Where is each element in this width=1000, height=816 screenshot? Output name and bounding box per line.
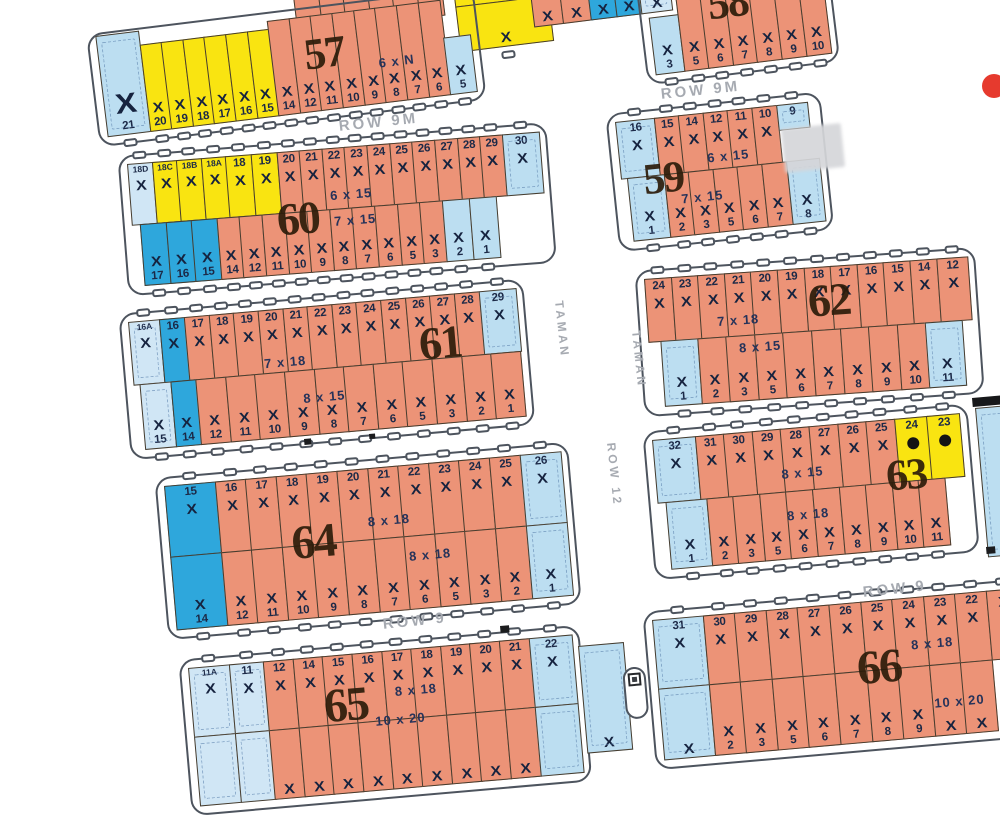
x-mark: X (723, 723, 735, 738)
plot-cell-12: 12X (936, 256, 972, 322)
street-access-tab (739, 67, 754, 77)
plot-number: 17 (191, 317, 204, 330)
street-access-tab (269, 442, 284, 451)
street-access-tab (931, 582, 946, 591)
red-location-marker (982, 74, 1000, 98)
plot-number: 22 (965, 594, 978, 607)
street-access-tab (181, 147, 196, 156)
plot-cell-23: 23 (926, 413, 965, 480)
street-access-tab (210, 447, 225, 456)
plot-number: 32 (668, 440, 681, 453)
x-mark: X (265, 590, 277, 605)
x-mark: X (661, 42, 673, 57)
street-access-tab (240, 444, 255, 453)
street-access-tab (201, 654, 216, 663)
x-mark: X (820, 443, 832, 458)
plot-number: 6 (422, 593, 429, 606)
street-access-tab (164, 306, 179, 315)
plot-number: 5 (692, 55, 700, 68)
plot-number: 25 (395, 144, 408, 157)
x-mark: X (465, 155, 477, 170)
plot-number: 7 (853, 728, 860, 741)
plot-number: 31 (672, 619, 685, 632)
plot-number: 11 (266, 606, 279, 619)
x-mark: X (709, 371, 721, 386)
plot-number: 12 (209, 428, 222, 441)
x-mark: X (209, 412, 221, 427)
plot-number: 12 (946, 259, 959, 272)
plot-number: 3 (483, 588, 490, 601)
plot-number: 30 (515, 135, 528, 148)
x-mark: X (313, 778, 325, 793)
plot-number: 2 (678, 221, 685, 234)
x-mark: X (442, 156, 454, 171)
plot-number: 7 (741, 49, 749, 62)
plot-number: 23 (350, 148, 363, 161)
street-access-tab (405, 452, 420, 461)
x-mark: X (761, 30, 773, 45)
plot-number: 9 (371, 89, 379, 102)
x-mark: X (674, 205, 686, 220)
x-mark: X (176, 251, 188, 266)
x-mark: X (786, 27, 798, 42)
plot-number: 28 (461, 294, 474, 307)
street-access-tab (774, 229, 789, 238)
block-60: 18DX18CX18BX18AX18X19X20X21X22X23X24X25X… (127, 132, 548, 287)
x-mark: X (291, 325, 303, 340)
x-mark: X (185, 174, 197, 189)
x-mark: X (680, 294, 692, 309)
plot-number: 9 (880, 535, 887, 548)
plot-number: 28 (789, 429, 802, 442)
street-access-tab (758, 417, 773, 426)
reserved-dot-mark (939, 434, 952, 447)
plot-number: 14 (282, 99, 296, 112)
street-access-tab (931, 549, 946, 558)
x-mark: X (257, 495, 269, 510)
plot-number: 8 (342, 255, 349, 268)
street-access-tab (387, 431, 402, 440)
street-access-tab (458, 97, 473, 107)
street-access-tab (157, 149, 172, 158)
x-mark: X (684, 536, 696, 551)
block-edge-parcel (975, 404, 1000, 557)
plot-number: 18A (206, 159, 222, 169)
street-label: TAMAN (629, 330, 649, 389)
plot-number: 3 (758, 736, 765, 749)
street-access-tab (454, 264, 469, 273)
street-access-tab (312, 293, 327, 302)
street-access-tab (905, 552, 920, 561)
plot-number: 1 (549, 582, 556, 595)
street-access-tab (909, 392, 924, 401)
x-mark: X (810, 623, 822, 638)
x-mark: X (201, 249, 213, 264)
x-mark: X (877, 519, 889, 534)
street-access-tab (670, 605, 685, 614)
x-mark: X (388, 70, 400, 85)
street-access-tab (903, 405, 918, 414)
plot-number: 23 (933, 596, 946, 609)
street-access-tab (202, 284, 217, 293)
x-mark: X (570, 5, 582, 20)
street-access-tab (253, 465, 268, 474)
street-access-tab (362, 271, 377, 280)
x-mark: X (227, 498, 239, 513)
x-mark: X (893, 279, 905, 294)
block-64: 15X16X17X18X19X20X21X22X23X24X25X26XX14X… (164, 451, 572, 630)
street-access-tab (182, 471, 197, 480)
street-access-tab (767, 402, 782, 411)
x-mark: X (948, 275, 960, 290)
x-mark: X (418, 577, 430, 592)
street-access-tab (799, 561, 814, 570)
street-access-tab (249, 280, 264, 289)
street-access-tab (683, 101, 698, 110)
x-mark: X (238, 89, 250, 104)
street-access-tab (783, 256, 798, 265)
street-access-tab (813, 58, 828, 68)
plot-number: 5 (769, 384, 776, 396)
x-mark: X (547, 654, 559, 669)
plot-number: 20 (479, 643, 492, 656)
plot-number: 1 (507, 402, 514, 415)
street-access-tab (542, 624, 557, 633)
plot-number: 24 (652, 280, 665, 293)
x-mark: X (766, 368, 778, 383)
x-mark: X (356, 399, 368, 414)
plot-cell-32: 32X (652, 436, 701, 504)
x-mark: X (787, 286, 799, 301)
x-mark: X (786, 717, 798, 732)
x-mark: X (778, 626, 790, 641)
plot-number: 27 (436, 296, 449, 309)
plot-number: 3 (748, 547, 755, 560)
x-mark: X (352, 164, 364, 179)
street-access-tab (477, 629, 492, 638)
plot-number: 6 (389, 413, 396, 426)
plot-number: 6 (435, 81, 443, 94)
street-access-tab (236, 628, 251, 637)
x-mark: X (338, 238, 350, 253)
plot-number: 17 (390, 651, 403, 664)
plot-number: 29 (744, 613, 757, 626)
plot-number: 8 (855, 378, 862, 390)
x-mark: X (205, 681, 217, 696)
x-mark: X (260, 171, 272, 186)
x-mark: X (718, 533, 730, 548)
block-number: 59 (641, 155, 685, 201)
plot-number: 19 (258, 155, 271, 168)
block-63: 32X31X30X29X28X27X26X25X2423X1X2X3X5X6X7… (652, 413, 970, 570)
x-mark: X (479, 227, 491, 242)
plot-cell: X (658, 684, 716, 760)
plot-number: 25 (387, 300, 400, 313)
x-mark: X (365, 318, 377, 333)
x-mark: X (504, 386, 516, 401)
plot-number: 14 (226, 263, 239, 276)
x-mark: X (455, 62, 467, 77)
x-mark: X (919, 277, 931, 292)
plot-number: 28 (776, 610, 789, 623)
plot-number: 15 (660, 118, 673, 131)
plot-number: 8 (765, 46, 773, 59)
street-access-tab (328, 620, 343, 629)
plot-number: 18 (420, 649, 433, 662)
street-access-tab (803, 226, 818, 235)
street-access-tab (450, 609, 465, 618)
x-mark: X (318, 490, 330, 505)
x-mark: X (909, 358, 921, 373)
plot-number: 5 (419, 410, 426, 423)
x-mark: X (393, 667, 405, 682)
street-access-tab (963, 580, 978, 589)
street-access-tab (852, 556, 867, 565)
plot-number: 16 (176, 267, 189, 280)
plot-number: 16 (239, 104, 253, 117)
plot-number: 3 (432, 247, 439, 260)
street-access-tab (272, 279, 287, 288)
street-access-tab (994, 577, 1000, 586)
plot-number: 22 (544, 638, 557, 651)
street-access-tab (863, 251, 878, 260)
plot-number: 29 (485, 137, 498, 150)
street-access-tab (787, 415, 802, 424)
street-access-tab (815, 412, 830, 421)
x-mark: X (113, 89, 138, 119)
block-61: 16AX16X17X18X19X20X21X22X23X24X25X26X27X… (128, 288, 526, 450)
plot-number: 21 (377, 468, 390, 481)
street-access-tab (805, 593, 820, 602)
plot-cell-22: 22X (528, 634, 578, 708)
plot-number: 5 (790, 733, 797, 746)
street-access-tab (646, 243, 661, 252)
block-58: X3X5X6X7X8X9X1058 (645, 0, 831, 75)
x-mark: X (225, 247, 237, 262)
plot-cell-26: 26X (519, 451, 567, 526)
plot-number: 5 (774, 545, 781, 558)
x-mark: X (260, 86, 272, 101)
x-mark: X (873, 618, 885, 633)
plot-cell-29: 29X (478, 288, 521, 355)
street-label: ROW 9 (382, 609, 448, 633)
plot-number: 11 (734, 110, 747, 123)
street-access-tab (676, 239, 691, 248)
street-access-tab (359, 640, 374, 649)
street-access-tab (436, 449, 451, 458)
x-mark: X (461, 765, 473, 780)
block-65: 11AX11X12X14X15X16X17X18X19X20X21X22XXXX… (188, 635, 583, 807)
plot-number: 20 (265, 311, 278, 324)
x-mark: X (791, 445, 803, 460)
plot-number: 11 (239, 425, 252, 438)
street-access-tab (825, 559, 840, 568)
x-mark: X (479, 571, 491, 586)
street-access-tab (344, 457, 359, 466)
street-access-tab (730, 420, 745, 429)
plot-number: 5 (452, 590, 459, 603)
street-access-tab (881, 394, 896, 403)
street-access-tab (459, 280, 474, 289)
plot-number: 2 (456, 245, 463, 258)
plot-number: 15 (261, 102, 275, 115)
street-access-tab (730, 260, 745, 269)
plot-number: 8 (330, 418, 337, 431)
plot-number: 10 (909, 373, 922, 386)
x-mark: X (850, 522, 862, 537)
x-mark: X (293, 242, 305, 257)
plot-number: 12 (236, 609, 249, 622)
street-access-tab (742, 599, 757, 608)
x-mark: X (490, 763, 502, 778)
plot-number: 6 (798, 382, 805, 394)
x-mark: X (275, 678, 287, 693)
x-mark: X (448, 574, 460, 589)
street-access-tab (677, 409, 692, 418)
x-mark: X (849, 712, 861, 727)
plot-number: 20 (758, 272, 771, 285)
x-mark: X (761, 124, 773, 139)
x-mark: X (242, 329, 254, 344)
plot-number: 7 (360, 415, 367, 428)
street-access-tab (783, 91, 798, 100)
plot-number: 24 (902, 599, 915, 612)
plot-number: 9 (301, 420, 308, 433)
x-mark: X (493, 307, 505, 322)
block-number: 65 (322, 681, 370, 730)
block-number: 61 (417, 319, 463, 366)
x-mark: X (536, 471, 548, 486)
plot-number: 14 (917, 261, 930, 274)
x-mark: X (707, 292, 719, 307)
x-mark: X (967, 610, 979, 625)
x-mark: X (474, 389, 486, 404)
street-access-tab (513, 121, 528, 130)
block-number: 63 (884, 452, 927, 497)
x-mark: X (976, 715, 988, 730)
street-access-tab (824, 398, 839, 407)
plot-number: 26 (846, 424, 859, 437)
street-access-tab (385, 286, 400, 295)
street-access-tab (418, 635, 433, 644)
x-mark: X (316, 323, 328, 338)
x-mark: X (663, 134, 675, 149)
plot-number: 10 (904, 533, 917, 546)
plot-number: 1 (688, 552, 695, 565)
x-mark: X (674, 635, 686, 650)
plot-number: 31 (703, 436, 716, 449)
block-57: X21X20X19X18X17X16X15X14X12X11X10X9X8X7X… (96, 0, 477, 137)
x-mark: X (316, 240, 328, 255)
plot-number: 1 (483, 243, 490, 256)
x-mark: X (687, 131, 699, 146)
street-access-tab (475, 423, 490, 432)
street-access-tab (262, 121, 277, 131)
plot-number: 9 (884, 376, 891, 388)
x-mark: X (153, 417, 165, 432)
plot-number: 14 (685, 115, 698, 128)
x-mark: X (654, 296, 666, 311)
plot-number: 25 (874, 421, 887, 434)
plot-number: 19 (316, 474, 329, 487)
plot-number: 15 (202, 265, 215, 278)
plot-number: 18 (233, 157, 246, 170)
plot-number: 23 (438, 463, 451, 476)
street-access-tab (238, 299, 253, 308)
x-mark: X (383, 235, 395, 250)
x-mark: X (324, 78, 336, 93)
plot-number: 9 (789, 105, 796, 118)
street-access-tab (844, 410, 859, 419)
plot-number: 16A (136, 322, 152, 332)
plot-number: 27 (807, 607, 820, 620)
plot-number: 10 (347, 91, 361, 104)
plot-number: 21 (122, 119, 136, 132)
plot-number: 2 (721, 549, 728, 562)
x-mark: X (238, 409, 250, 424)
plot-number: 22 (407, 466, 420, 479)
x-mark: X (160, 176, 172, 191)
plot-number: 22 (327, 149, 340, 162)
street-access-tab (415, 128, 430, 137)
plot-number: 14 (302, 659, 315, 672)
street-access-tab (196, 631, 211, 640)
plot-number: 11 (241, 664, 254, 677)
plot-number: 7 (364, 253, 371, 266)
plot-number: 7 (391, 596, 398, 609)
x-mark: X (755, 720, 767, 735)
plot-number: 23 (679, 278, 692, 291)
plot-number: 2 (712, 388, 719, 400)
plot-number: 17 (151, 269, 164, 282)
x-mark: X (500, 29, 512, 44)
street-access-tab (701, 422, 716, 431)
block-number: 64 (290, 517, 338, 566)
street-access-tab (317, 275, 332, 284)
plot-number: 21 (508, 641, 521, 654)
x-mark: X (748, 197, 760, 212)
x-mark: X (712, 36, 724, 51)
street-access-tab (772, 563, 787, 572)
plot-number: 8 (854, 538, 861, 551)
street-access-tab (262, 297, 277, 306)
plot-number: 29 (760, 431, 773, 444)
x-mark: X (866, 281, 878, 296)
x-mark: X (941, 355, 953, 370)
x-mark: X (542, 8, 554, 23)
x-mark: X (297, 404, 309, 419)
plot-cell (975, 404, 1000, 557)
street-access-tab (505, 421, 520, 430)
street-access-tab (836, 253, 851, 262)
plot-number: 19 (175, 112, 189, 125)
plot-number: 8 (361, 598, 368, 611)
road-mark-square (304, 438, 311, 445)
street-access-tab (206, 145, 221, 154)
x-mark: X (209, 172, 221, 187)
plot-number: 18 (196, 110, 210, 123)
street-access-tab (916, 247, 931, 256)
plot-number: 12 (304, 97, 318, 110)
plot-number: 26 (839, 605, 852, 618)
street-access-tab (222, 468, 237, 477)
x-mark: X (415, 394, 427, 409)
plot-number: 6 (821, 731, 828, 744)
street-access-tab (480, 606, 495, 615)
redaction-blur (781, 123, 845, 173)
street-access-tab (287, 295, 302, 304)
plot-number: 3 (703, 218, 710, 231)
